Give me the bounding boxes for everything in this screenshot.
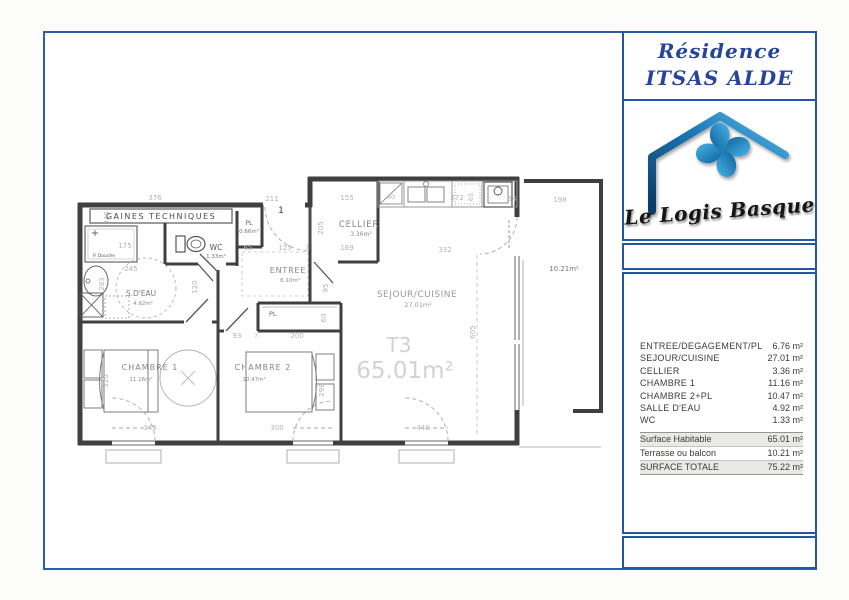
dimension-labels: 376 211 155 272 34 198 60 65 840 283 320…: [98, 193, 567, 432]
entree-label: ENTREE: [270, 266, 306, 275]
chambre1-clearance-circle: [160, 350, 216, 406]
summary-row-habitable: Surface Habitable 65.01 m²: [640, 433, 803, 446]
svg-text:320: 320: [102, 374, 110, 387]
svg-text:200: 200: [290, 332, 303, 340]
svg-text:125: 125: [278, 244, 291, 252]
sidebar-divider-strip-bottom: [622, 536, 817, 569]
surface-table: ENTREE/DEGAGEMENT/PL 6.76 m² SEJOUR/CUIS…: [640, 340, 803, 475]
table-row: SALLE D'EAU 4.92 m²: [640, 402, 803, 414]
unit-area-label: 65.01m²: [356, 358, 453, 384]
svg-text:155: 155: [340, 194, 353, 202]
logo-box: Le Logis Basque: [622, 99, 817, 241]
pl-entree-label: PL: [245, 219, 253, 227]
washer-dashed: [105, 296, 129, 318]
svg-text:93: 93: [233, 332, 242, 340]
svg-text:60: 60: [320, 314, 328, 323]
svg-text:65: 65: [467, 193, 475, 201]
table-row: CHAMBRE 1 11.16 m²: [640, 377, 803, 389]
table-row: CHAMBRE 2+PL 10.47 m²: [640, 390, 803, 402]
svg-text:198: 198: [553, 196, 566, 204]
svg-text:332: 332: [438, 246, 451, 254]
wc-area: 1.33m²: [206, 253, 226, 260]
pl-entree-area: 0.66m²: [239, 228, 259, 235]
svg-text:175: 175: [118, 242, 131, 250]
svg-text:283: 283: [98, 277, 106, 290]
table-row: WC 1.33 m²: [640, 414, 803, 426]
sdeau-area: 4.92m²: [133, 300, 153, 307]
svg-text:205: 205: [317, 221, 325, 234]
window-sills: [106, 260, 601, 463]
residence-title-box: Résidence ITSAS ALDE: [622, 31, 817, 101]
svg-text:605: 605: [469, 325, 477, 338]
surface-table-box: ENTREE/DEGAGEMENT/PL 6.76 m² SEJOUR/CUIS…: [622, 272, 817, 534]
svg-text:120: 120: [191, 280, 199, 293]
chambre1-area: 11.16m²: [129, 376, 152, 383]
summary-row-totale: SURFACE TOTALE 75.22 m²: [640, 460, 803, 474]
terrasse-area: 10.21m²: [549, 265, 579, 273]
residence-name-line2: ITSAS ALDE: [624, 65, 815, 92]
svg-text:211: 211: [265, 195, 278, 203]
svg-text:345: 345: [143, 424, 156, 432]
svg-text:245: 245: [124, 265, 137, 273]
residence-name-line1: Résidence: [624, 38, 815, 65]
table-row: ENTREE/DEGAGEMENT/PL 6.76 m²: [640, 340, 803, 352]
toilet: [176, 236, 205, 252]
p-douche-label: P. Douche: [93, 253, 115, 259]
svg-text:169: 169: [340, 244, 353, 252]
svg-text:298: 298: [318, 383, 326, 396]
svg-text:65: 65: [244, 244, 253, 252]
surface-summary: Surface Habitable 65.01 m² Terrasse ou b…: [640, 432, 803, 475]
terrace-walls: [524, 179, 601, 413]
svg-text:440: 440: [416, 424, 429, 432]
cellier-area: 3.36m²: [350, 231, 372, 238]
svg-text:376: 376: [148, 194, 162, 202]
windows: [112, 256, 519, 445]
sidebar-divider-strip-top: [622, 243, 817, 270]
unit-type-label: T3: [386, 333, 412, 357]
entree-area: 6.10m²: [280, 277, 300, 284]
summary-row-terrasse: Terrasse ou balcon 10.21 m²: [640, 446, 803, 460]
table-row: SEJOUR/CUISINE 27.01 m²: [640, 352, 803, 364]
svg-text:7: 7: [254, 333, 258, 340]
door-number: 1: [278, 206, 284, 216]
cellier-label: CELLIER: [339, 220, 379, 230]
sejour-label: SEJOUR/CUISINE: [377, 290, 457, 300]
svg-text:7: 7: [305, 245, 309, 252]
gaines-label: GAINES TECHNIQUES: [106, 212, 216, 221]
sejour-area: 27.01m²: [404, 301, 432, 309]
sdeau-label: S.D'EAU: [126, 289, 156, 298]
chambre1-label: CHAMBRE 1: [122, 363, 179, 372]
chambre2-area: 10.47m²: [242, 376, 265, 383]
table-row: CELLIER 3.36 m²: [640, 365, 803, 377]
door-swing-arcs: [112, 207, 517, 441]
svg-text:60: 60: [387, 193, 395, 201]
svg-text:95: 95: [322, 284, 330, 293]
svg-text:272: 272: [450, 194, 463, 202]
wc-label: WC: [210, 243, 223, 252]
pl-chambre2-label: PL: [269, 310, 277, 318]
svg-text:300: 300: [270, 424, 283, 432]
svg-text:34: 34: [508, 195, 517, 203]
technical-shaft: [80, 293, 103, 317]
chambre2-label: CHAMBRE 2: [235, 363, 292, 372]
